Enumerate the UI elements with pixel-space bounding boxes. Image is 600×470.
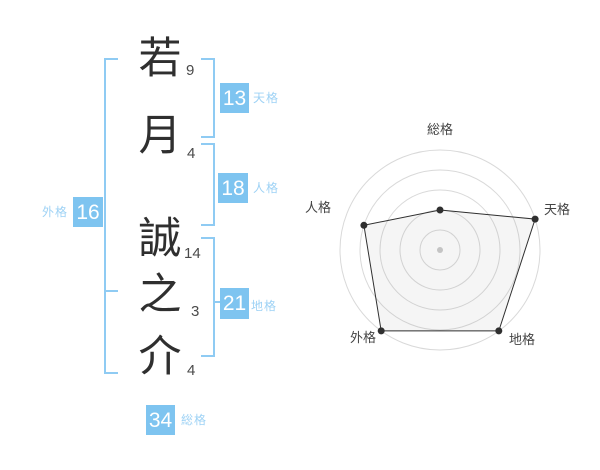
tenkaku-bracket-tick-top — [201, 58, 214, 60]
soukaku-value-badge: 34 — [146, 405, 175, 435]
gaikaku-label: 外格 — [42, 206, 68, 218]
stroke-count-1: 9 — [186, 63, 194, 78]
radar-axis-label: 外格 — [350, 330, 376, 345]
gaikaku-value-badge: 16 — [73, 197, 103, 227]
radar-vertex-dot — [360, 222, 367, 229]
radar-center-dot — [437, 247, 443, 253]
name-char-3: 誠 — [134, 218, 186, 261]
gaikaku-bracket-tick-top — [104, 58, 118, 60]
tenkaku-bracket-tick-bottom — [201, 136, 214, 138]
stroke-count-5: 4 — [187, 363, 195, 378]
radar-axis-label: 人格 — [305, 200, 331, 215]
tenkaku-bracket-line — [213, 58, 215, 138]
name-char-5: 介 — [134, 336, 186, 379]
seimei-handan-result: 若 月 誠 之 介 9 4 14 3 4 13 18 21 16 34 天格 人… — [0, 0, 600, 470]
soukaku-label: 総格 — [181, 414, 207, 426]
radar-axis-label: 総格 — [427, 122, 453, 137]
gaikaku-bracket-line — [104, 58, 106, 374]
radar-vertex-dot — [532, 216, 539, 223]
radar-vertex-dot — [378, 327, 385, 334]
jinkaku-value-badge: 18 — [218, 173, 248, 203]
radar-vertex-dot — [495, 327, 502, 334]
chikaku-bracket-line — [213, 237, 215, 357]
gaikaku-bracket-tick-middle — [104, 290, 118, 292]
chikaku-value-badge: 21 — [220, 288, 249, 319]
radar-data-polygon — [364, 210, 535, 331]
chikaku-bracket-tick-top — [201, 237, 214, 239]
radar-axis-label: 地格 — [509, 332, 535, 347]
stroke-count-4: 3 — [191, 304, 199, 319]
jinkaku-bracket-tick-top — [201, 143, 214, 145]
name-char-4: 之 — [134, 274, 186, 317]
chikaku-label: 地格 — [251, 300, 277, 312]
chikaku-bracket-tick-bottom — [201, 355, 214, 357]
tenkaku-label: 天格 — [253, 92, 279, 104]
stroke-count-3: 14 — [184, 246, 201, 261]
jinkaku-label: 人格 — [253, 182, 279, 194]
radar-axis-label: 天格 — [544, 202, 570, 217]
name-char-1: 若 — [134, 38, 186, 81]
radar-chart: 総格天格地格外格人格 — [290, 110, 590, 360]
jinkaku-bracket-tick-bottom — [201, 224, 214, 226]
jinkaku-bracket-line — [213, 143, 215, 226]
stroke-count-2: 4 — [187, 146, 195, 161]
radar-vertex-dot — [437, 207, 444, 214]
tenkaku-value-badge: 13 — [220, 83, 249, 113]
gaikaku-bracket-tick-bottom — [104, 372, 118, 374]
name-char-2: 月 — [134, 115, 186, 158]
